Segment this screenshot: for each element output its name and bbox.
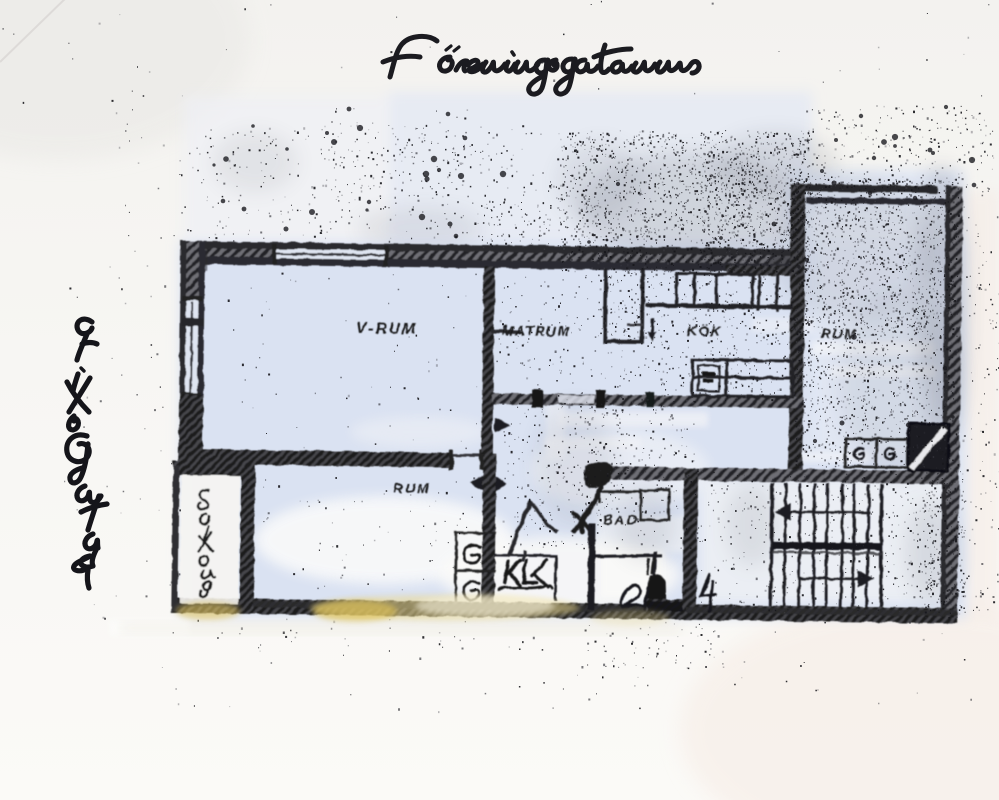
svg-text:RUM: RUM: [821, 326, 858, 341]
svg-text:RUM: RUM: [393, 480, 431, 496]
svg-text:MATRUM: MATRUM: [502, 322, 571, 339]
svg-text:V-RUM: V-RUM: [356, 320, 417, 338]
svg-text:BAD: BAD: [602, 512, 639, 528]
svg-text:KÖK: KÖK: [687, 323, 722, 339]
